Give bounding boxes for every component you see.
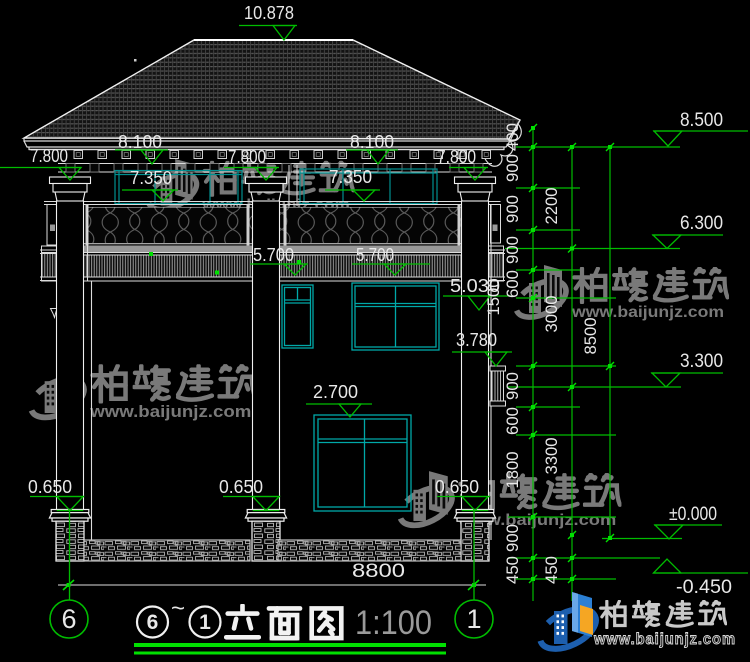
svg-text:8.100: 8.100 bbox=[118, 132, 162, 152]
svg-text:www.baijunjz.com: www.baijunjz.com bbox=[593, 631, 736, 648]
svg-text:7.350: 7.350 bbox=[329, 167, 372, 187]
svg-text:0.650: 0.650 bbox=[28, 477, 72, 497]
svg-text:900: 900 bbox=[503, 372, 522, 400]
svg-text:8.500: 8.500 bbox=[680, 110, 723, 131]
svg-text:2.700: 2.700 bbox=[313, 382, 358, 402]
svg-text:5.700: 5.700 bbox=[356, 245, 394, 265]
svg-text:3.780: 3.780 bbox=[456, 330, 497, 350]
svg-text:5.700: 5.700 bbox=[253, 245, 294, 265]
svg-text:400: 400 bbox=[503, 123, 522, 151]
svg-text:±0.000: ±0.000 bbox=[669, 504, 717, 525]
svg-text:450: 450 bbox=[503, 556, 522, 584]
svg-text:6: 6 bbox=[61, 604, 76, 634]
svg-text:7.800: 7.800 bbox=[228, 147, 266, 167]
svg-text:~: ~ bbox=[171, 595, 185, 622]
svg-text:8500: 8500 bbox=[581, 318, 600, 355]
svg-text:450: 450 bbox=[542, 556, 561, 584]
svg-text:7.350: 7.350 bbox=[130, 168, 172, 188]
svg-text:10.878: 10.878 bbox=[244, 3, 294, 23]
svg-text:1:100: 1:100 bbox=[355, 604, 432, 642]
svg-text:3000: 3000 bbox=[542, 296, 561, 333]
svg-text:1: 1 bbox=[466, 604, 481, 634]
svg-text:6.300: 6.300 bbox=[680, 213, 723, 234]
svg-text:3300: 3300 bbox=[542, 438, 561, 475]
svg-text:7.800: 7.800 bbox=[437, 147, 476, 167]
svg-text:-0.450: -0.450 bbox=[676, 577, 732, 598]
svg-text:1: 1 bbox=[199, 611, 211, 634]
svg-text:600: 600 bbox=[503, 407, 522, 435]
svg-text:0.650: 0.650 bbox=[435, 477, 479, 497]
svg-text:7.800: 7.800 bbox=[30, 146, 68, 166]
svg-text:1800: 1800 bbox=[503, 452, 522, 489]
svg-text:3.300: 3.300 bbox=[680, 351, 723, 372]
svg-text:900: 900 bbox=[503, 195, 522, 223]
svg-text:8800: 8800 bbox=[352, 561, 405, 582]
svg-text:900: 900 bbox=[503, 524, 522, 552]
svg-text:2200: 2200 bbox=[542, 188, 561, 225]
svg-text:6: 6 bbox=[147, 611, 159, 634]
svg-text:8.100: 8.100 bbox=[350, 132, 394, 152]
svg-text:600: 600 bbox=[503, 270, 522, 298]
svg-text:900: 900 bbox=[503, 236, 522, 264]
svg-text:1500: 1500 bbox=[484, 279, 503, 316]
svg-text:0.650: 0.650 bbox=[219, 477, 263, 497]
svg-text:900: 900 bbox=[503, 154, 522, 182]
